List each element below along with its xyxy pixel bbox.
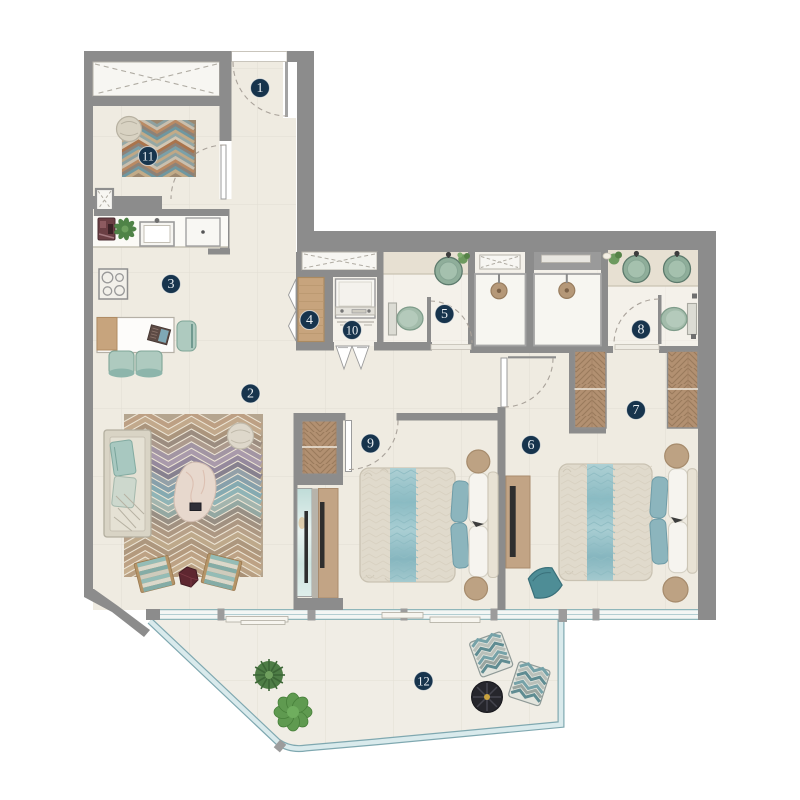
- svg-text:6: 6: [528, 438, 535, 453]
- svg-text:5: 5: [441, 307, 448, 322]
- svg-text:12: 12: [417, 675, 430, 689]
- svg-text:2: 2: [247, 387, 254, 402]
- svg-text:10: 10: [346, 324, 359, 338]
- svg-text:8: 8: [638, 323, 645, 338]
- svg-text:9: 9: [367, 437, 374, 452]
- svg-text:7: 7: [633, 403, 640, 418]
- svg-text:3: 3: [168, 277, 175, 292]
- svg-text:1: 1: [257, 81, 264, 96]
- svg-text:4: 4: [306, 313, 313, 328]
- svg-text:11: 11: [142, 150, 154, 164]
